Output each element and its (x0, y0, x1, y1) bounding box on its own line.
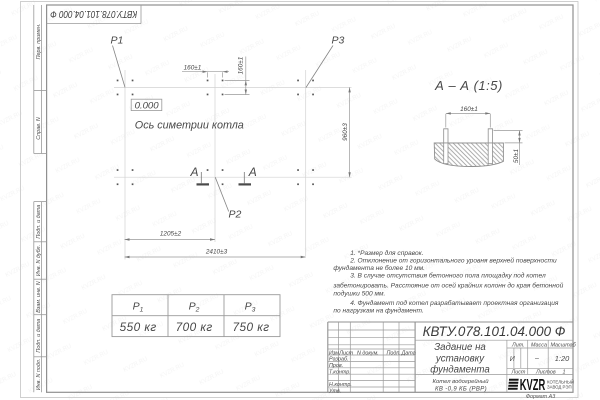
svg-text:А: А (189, 165, 198, 179)
svg-text:960±3: 960±3 (342, 123, 349, 141)
svg-text:1205±2: 1205±2 (160, 231, 182, 238)
svg-text:Инв. N дубл.: Инв. N дубл. (36, 245, 42, 276)
svg-text:фундамента не более 10 мм.: фундамента не более 10 мм. (333, 264, 425, 272)
svg-text:КВТУ.078.101.04.000 Ф: КВТУ.078.101.04.000 Ф (423, 324, 566, 339)
svg-text:Ось симетрии котла: Ось симетрии котла (135, 120, 244, 132)
svg-text:P2: P2 (229, 209, 242, 221)
svg-text:установку: установку (435, 354, 485, 365)
svg-text:2. Отклонение от горизонтальн: 2. Отклонение от горизонтального уровня … (349, 257, 557, 265)
svg-text:160±1: 160±1 (184, 65, 202, 72)
svg-text:0.000: 0.000 (135, 100, 160, 111)
svg-text:Подп.: Подп. (387, 350, 401, 356)
svg-text:4. Фундамент под котел разраб: 4. Фундамент под котел разрабатывает про… (350, 299, 559, 307)
svg-text:Лит.: Лит. (511, 343, 525, 349)
svg-text:Пров.: Пров. (329, 363, 343, 369)
svg-text:Дата: Дата (401, 350, 416, 356)
svg-text:КВ -0,9 КБ (РВР): КВ -0,9 КБ (РВР) (435, 387, 487, 393)
svg-text:А: А (248, 165, 257, 179)
svg-text:КВТУ.078.101.04.000 Ф: КВТУ.078.101.04.000 Ф (50, 8, 137, 19)
svg-text:1:20: 1:20 (555, 354, 570, 363)
svg-text:750 кг: 750 кг (232, 320, 269, 334)
svg-text:по нагрузкам на фундамент.: по нагрузкам на фундамент. (333, 307, 424, 315)
svg-text:фундамента: фундамента (430, 365, 490, 376)
svg-text:Листов: Листов (535, 369, 556, 375)
svg-text:Справ. N: Справ. N (36, 117, 42, 140)
svg-text:Лист: Лист (338, 350, 353, 356)
svg-text:Инв. N подл.: Инв. N подл. (36, 359, 42, 391)
svg-text:160±1: 160±1 (237, 56, 244, 74)
svg-text:2410±3: 2410±3 (205, 248, 228, 255)
svg-text:Подп. и дата: Подп. и дата (36, 319, 42, 353)
svg-text:N докум.: N докум. (357, 350, 379, 356)
svg-text:Лист: Лист (511, 369, 526, 375)
svg-text:3. В случае отсутствия бетонн: 3. В случае отсутствия бетонного пола пл… (350, 272, 546, 280)
svg-text:Н.контр.: Н.контр. (329, 382, 352, 388)
svg-text:Утв.: Утв. (328, 389, 341, 395)
svg-text:50±1: 50±1 (513, 148, 520, 163)
svg-text:забетонировать. Расстояние от: забетонировать. Расстояние от осей крайн… (332, 282, 563, 290)
svg-text:ЗАВОД РЭП: ЗАВОД РЭП (547, 385, 572, 390)
svg-text:Формат А3: Формат А3 (526, 394, 556, 400)
svg-text:550 кг: 550 кг (120, 320, 157, 334)
svg-text:Перв. примен.: Перв. примен. (36, 24, 42, 60)
svg-text:А – А (1:5): А – А (1:5) (434, 78, 503, 93)
svg-text:Подп. и дата: Подп. и дата (36, 205, 42, 239)
svg-text:P1: P1 (111, 35, 124, 47)
svg-text:–: – (534, 355, 539, 362)
svg-text:Задание на: Задание на (434, 342, 486, 353)
svg-text:KVZR: KVZR (520, 377, 546, 394)
svg-text:700 кг: 700 кг (176, 320, 213, 334)
svg-text:160±1: 160±1 (460, 106, 478, 113)
svg-text:1: 1 (563, 369, 566, 375)
svg-text:Разраб.: Разраб. (329, 357, 349, 363)
svg-text:Котел водогрейный: Котел водогрейный (432, 378, 489, 385)
svg-text:Масштаб: Масштаб (551, 343, 577, 349)
svg-text:P3: P3 (332, 35, 345, 47)
svg-text:подушки 500 мм.: подушки 500 мм. (333, 289, 385, 297)
svg-text:1. *Размер для справок.: 1. *Размер для справок. (350, 249, 424, 257)
svg-text:Масса: Масса (531, 343, 547, 349)
svg-text:Взам. инв. N: Взам. инв. N (36, 281, 42, 313)
svg-text:Т.контр.: Т.контр. (329, 369, 351, 375)
